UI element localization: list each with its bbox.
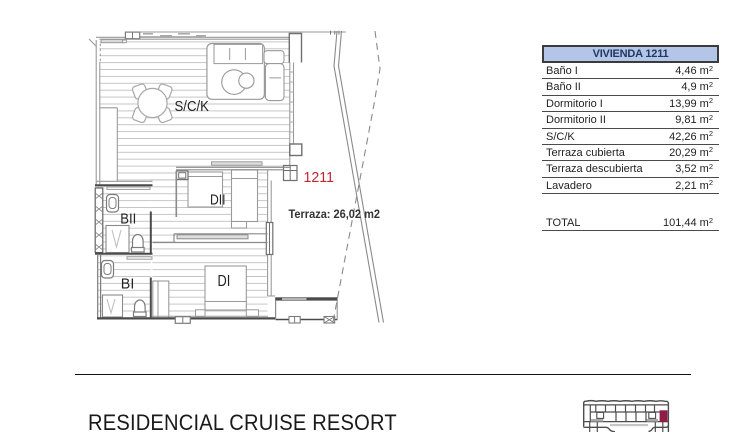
svg-text:DII: DII <box>210 192 226 209</box>
svg-text:Terraza: 26,02 m2: Terraza: 26,02 m2 <box>289 207 381 221</box>
svg-text:BI: BI <box>121 276 135 293</box>
svg-text:BII: BII <box>120 211 136 228</box>
svg-text:S/C/K: S/C/K <box>175 98 210 115</box>
svg-text:DI: DI <box>218 273 231 290</box>
svg-text:1211: 1211 <box>304 169 335 186</box>
